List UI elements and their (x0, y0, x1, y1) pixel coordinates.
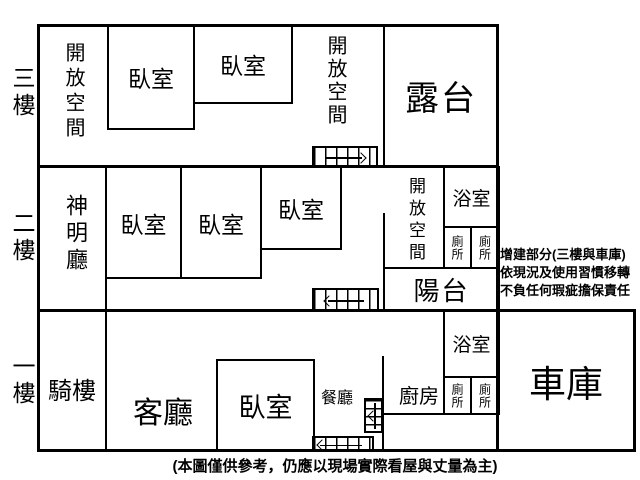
garage-label: 車庫 (529, 354, 603, 408)
room-f2-bedroom-1: 臥室 (105, 166, 182, 279)
room-f1-bedroom: 臥室 (216, 359, 315, 452)
f1-arcade-label: 騎樓 (39, 371, 105, 406)
room-f2-toilet-left: 廁所 (443, 226, 472, 269)
f2-toilet-left-label: 廁所 (449, 235, 466, 261)
f2-bathroom-label: 浴室 (452, 184, 490, 211)
disclaimer-line-1: 增建部分(三樓與車庫) (500, 246, 640, 264)
disclaimer-line-2: 依現況及使用習慣移轉 (500, 264, 640, 282)
disclaimer-line-3: 不負任何瑕疵擔保責任 (500, 282, 640, 300)
floor-label-1f: 一樓 (5, 354, 39, 408)
f1-toilet-right-label: 廁所 (477, 383, 494, 409)
f3-terrace-label: 露台 (405, 71, 477, 120)
f3-open-space-left-label: 開放空間 (59, 42, 88, 142)
wall-f2-partial (383, 213, 385, 269)
f2-bedroom3-label: 臥室 (278, 191, 324, 225)
room-f1-toilet-left: 廁所 (443, 376, 472, 415)
stairs-1f-vertical-arrow-icon (367, 410, 378, 421)
f3-bedroom2-label: 臥室 (220, 47, 266, 81)
stairs-3f-arrow-right-icon (355, 152, 366, 163)
f1-living-room-label: 客廳 (118, 388, 208, 432)
f1-toilet-left-label: 廁所 (449, 383, 466, 409)
f1-kitchen-label: 廚房 (393, 380, 445, 409)
room-garage: 車庫 (496, 309, 636, 452)
stairs-2f (312, 288, 379, 311)
f3-open-space-right-label: 開放空間 (321, 35, 350, 127)
stairs-3f (312, 146, 378, 167)
room-f2-bedroom-3: 臥室 (260, 166, 342, 250)
room-f2-bathroom: 浴室 (443, 166, 500, 228)
f1-bathroom-label: 浴室 (452, 330, 490, 357)
stairs-1f-horizontal (312, 436, 374, 452)
bottom-caption: (本圖僅供參考，仍應以現場實際看屋與丈量為主) (155, 455, 515, 476)
floor-label-3f: 三樓 (5, 66, 39, 120)
f1-dining-label: 餐廳 (311, 384, 363, 408)
stairs-1f-arrow-left-icon (316, 439, 327, 450)
room-f3-bedroom-2: 臥室 (193, 24, 293, 104)
stairs-2f-arrow-left-icon (323, 295, 334, 306)
room-f2-balcony: 陽台 (383, 267, 500, 311)
room-f1-toilet-right: 廁所 (470, 376, 500, 415)
room-f1-bathroom: 浴室 (443, 309, 500, 378)
room-f2-toilet-right: 廁所 (470, 226, 500, 269)
addition-disclaimer-note: 增建部分(三樓與車庫) 依現況及使用習慣移轉 不負任何瑕疵擔保責任 (500, 246, 640, 300)
room-f2-bedroom-2: 臥室 (180, 166, 262, 279)
f2-toilet-right-label: 廁所 (477, 235, 494, 261)
stairs-1f-vertical (364, 398, 383, 433)
f2-balcony-label: 陽台 (413, 271, 469, 308)
f2-bedroom1-label: 臥室 (121, 206, 167, 240)
f2-bedroom2-label: 臥室 (198, 206, 244, 240)
floor-plan-diagram: 車庫 三樓 開放空間 臥室 臥室 開放空間 露台 二樓 神明廳 臥室 臥室 臥室… (0, 0, 640, 480)
floor-label-2f: 二樓 (5, 211, 39, 265)
room-f3-bedroom-1: 臥室 (107, 24, 195, 130)
wall-f1-arcade (105, 310, 107, 452)
f1-bedroom-label: 臥室 (239, 386, 293, 425)
f2-shrine-label: 神明廳 (59, 194, 91, 275)
f2-open-space-label: 開放空間 (403, 177, 428, 265)
room-f3-terrace: 露台 (383, 24, 499, 167)
f3-bedroom1-label: 臥室 (128, 60, 174, 94)
